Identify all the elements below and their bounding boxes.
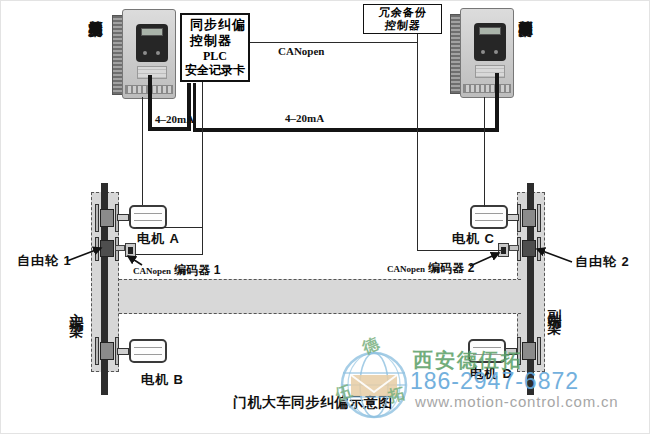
wire-canopen-encoder2 <box>417 250 502 251</box>
right-beam-label: 副端梁 <box>548 298 562 313</box>
stub-encoder-1 <box>115 245 125 251</box>
free-wheel-1-label: 自由轮 1 <box>17 252 72 270</box>
main-girder <box>119 279 521 314</box>
motor-b <box>129 339 167 363</box>
canopen-bus-label: CANopen <box>278 45 324 57</box>
wire-4-20ma-left-horiz <box>148 127 191 131</box>
right-vfd-image <box>450 8 514 98</box>
watermark-phone: 186-2947-6872 <box>410 368 579 395</box>
wire-canopen-backup-down <box>417 34 418 251</box>
shaft-motor-b <box>117 348 129 355</box>
logo-char-top: 德 <box>359 334 382 360</box>
drive-wheel-a <box>95 204 119 232</box>
free-wheel-2 <box>517 237 541 261</box>
backup-line1: 冗余备份 <box>378 6 427 19</box>
backup-line2: 控制器 <box>384 19 421 32</box>
watermark-website: www.motion-control.com.cn <box>415 393 618 410</box>
wire-4-20ma-left-vfd <box>148 75 152 129</box>
plc-line3: PLC <box>182 49 248 64</box>
ma-left-label: 4–20mA <box>155 113 194 125</box>
wire-canopen-encoder1-top <box>136 227 203 228</box>
motor-c-label: 电机 C <box>452 230 495 248</box>
encoder-1 <box>125 243 136 257</box>
encoder-2-label: CANopen 编码器 2 <box>387 258 474 277</box>
motor-c <box>470 205 508 229</box>
motor-b-label: 电机 B <box>141 371 184 389</box>
drive-wheel-c <box>517 204 541 232</box>
encoder-2-prefix: CANopen <box>387 264 425 274</box>
plc-controller-box: 同步纠偏 控制器 PLC 安全记录卡 <box>180 13 250 82</box>
wire-canopen-encoder1-horiz <box>136 254 203 255</box>
wire-4-20ma-right-vfd <box>495 73 499 132</box>
wire-canopen-encoder1-down <box>202 82 203 255</box>
ma-right-label: 4–20mA <box>285 112 324 124</box>
stub-encoder-2 <box>509 245 519 251</box>
encoder-1-name: 编码器 1 <box>171 263 220 277</box>
plc-line2: 控制器 <box>182 33 248 49</box>
encoder-1-label: CANopen 编码器 1 <box>133 260 220 279</box>
encoder-2-name: 编码器 2 <box>425 261 474 275</box>
wire-vfd-motor-c <box>484 97 485 207</box>
left-beam-label: 主端梁 <box>70 301 84 316</box>
drive-wheel-b <box>95 337 119 365</box>
wire-vfd-motor-a <box>142 97 143 205</box>
wire-4-20ma-main-horiz <box>193 128 499 132</box>
backup-controller-box: 冗余备份 控制器 <box>363 4 442 34</box>
motor-a-label: 电机 A <box>137 230 180 248</box>
encoder-1-prefix: CANopen <box>133 266 171 276</box>
free-wheel-2-label: 自由轮 2 <box>575 253 630 271</box>
plc-line1: 同步纠偏 <box>182 17 248 33</box>
plc-line4: 安全记录卡 <box>182 63 248 78</box>
diagram-caption: 门机大车同步纠偏示意图 <box>233 394 393 412</box>
shaft-motor-c <box>507 214 519 221</box>
gantry-sync-diagram: 同步纠偏 控制器 PLC 安全记录卡 冗余备份 控制器 主端梁变频器 副端梁变频… <box>0 0 650 434</box>
left-vfd-image <box>112 9 176 99</box>
wire-canopen-top <box>250 42 418 43</box>
shaft-motor-a <box>117 214 129 221</box>
motor-a <box>129 205 167 229</box>
